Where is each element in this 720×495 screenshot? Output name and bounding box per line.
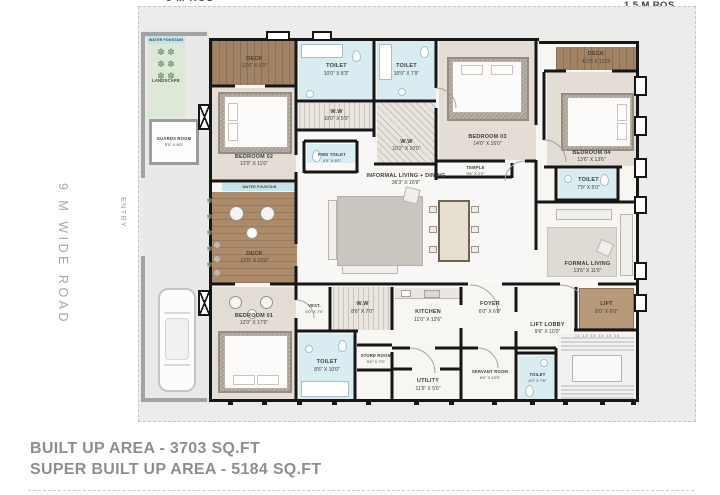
room-name: W.W (330, 109, 342, 116)
car (158, 288, 196, 392)
room-name: UTILITY (417, 378, 439, 385)
room-dims: 5'0" X 7'0" (305, 309, 323, 314)
room-dims: 5'0" X 5'0" (165, 142, 183, 147)
water-fountain-strip: WATER FOUNTAIN (222, 183, 297, 191)
room-name: W.W (356, 301, 368, 308)
wall-stub (530, 399, 535, 405)
window (634, 294, 647, 312)
room-vestibule: VEST.5'0" X 7'0" (299, 287, 330, 330)
room-dims: 13'6" X 11'6" (574, 268, 602, 275)
wall-stub (600, 399, 605, 405)
super-built-up-area-text: SUPER BUILT UP AREA - 5184 SQ.FT (30, 461, 321, 479)
room-name: TOILET (396, 63, 417, 70)
room-lift: LIFT8'0" X 6'0" (579, 288, 634, 329)
car-roof (165, 318, 189, 360)
entry-label: ENTRY (119, 197, 126, 228)
stair-step-numbers: 11 12 13 14 15 16 (559, 334, 636, 338)
floor-plan-canvas: 5 M ROS 1.5 M ROS 9 M WIDE ROAD ENTRY WA… (0, 0, 720, 495)
room-servant: SERVANT ROOM6'0" X 13'3" (464, 351, 516, 399)
room-bedroom-04: BEDROOM 0413'6" X 13'6" (547, 72, 636, 166)
room-name: WATER FOUNTAIN (243, 185, 277, 190)
room-dims: 12'0" X 10'0" (240, 258, 268, 265)
room-formal-living: FORMAL LIVING13'6" X 11'6" (539, 205, 636, 283)
room-name: LIFT (600, 301, 612, 308)
room-name: BEDROOM 03 (468, 134, 506, 141)
compound-wall (141, 398, 207, 402)
dining-chair (429, 246, 437, 253)
room-dims: 7'9" X 5'0" (577, 185, 600, 192)
room-dims: 9'6" X 2'0" (466, 171, 484, 176)
car-windshield (164, 312, 190, 314)
room-store: STORE ROOM5'0" X 7'0" (360, 348, 392, 369)
room-dims: 6'0" X 13'3" (480, 375, 500, 380)
living-rug (337, 196, 423, 266)
room-name: W.W (400, 139, 412, 146)
dining-chair (471, 226, 479, 233)
built-up-area-text: BUILT UP AREA - 3703 SQ.FT (30, 440, 260, 458)
wall-stub (449, 399, 454, 405)
room-ww-bedroom03: W.W10'2" X 10'0" (377, 103, 436, 163)
room-name: INFORMAL LIVING + DINING (347, 173, 465, 180)
room-dims: 8'6" X 10'0" (314, 367, 339, 374)
window (312, 31, 332, 41)
road-label: 9 M WIDE ROAD (56, 183, 70, 325)
unit-top-step (539, 30, 639, 44)
room-guards: GUARDS ROOM5'0" X 5'0" (149, 119, 199, 165)
room-deck-bedroom02: DECK12'0" X 5'0" (212, 41, 297, 85)
room-foyer: FOYER6'0" X 6'0" (464, 287, 516, 330)
room-pwd-toilet: PWD TOILET5'0" X 6'0" (307, 144, 357, 172)
room-name: LIFT LOBBY (530, 322, 564, 329)
sofa (342, 265, 398, 274)
room-dims: 4175 X 1225 (582, 59, 610, 66)
room-name: WATER FOUNTAIN (149, 38, 183, 43)
room-name: TOILET (578, 177, 599, 184)
bottom-divider (28, 490, 694, 491)
stair-landing (572, 355, 622, 382)
room-name: FORMAL LIVING (565, 261, 611, 268)
room-name: LANDSCAPE (152, 78, 180, 84)
wall-stub (492, 399, 497, 405)
room-dims: 11'6" X 5'6" (415, 386, 440, 393)
room-toilet-servant: TOILET4'0" X 7'6" (519, 356, 556, 399)
room-dims: 10'0" X 5'0" (324, 116, 349, 123)
room-dims: 14'0" X 16'0" (473, 141, 501, 148)
room-name: TOILET (326, 63, 347, 70)
room-name: KITCHEN (415, 309, 441, 316)
room-name: BEDROOM 01 (235, 313, 273, 320)
room-bedroom-03: BEDROOM 0314'0" X 16'0" (439, 41, 536, 160)
room-dims: 10'9" X 7'9" (394, 71, 419, 78)
room-deck-bedroom01: DECK12'0" X 10'0" (212, 192, 297, 283)
room-name: BEDROOM 04 (572, 150, 610, 157)
dining-table (438, 200, 470, 262)
column-niche (198, 290, 211, 316)
wall-stub (297, 399, 302, 405)
room-dims: 5'0" X 7'0" (367, 359, 385, 364)
room-dims: 10'0" X 8'3" (324, 71, 349, 78)
room-toilet-bedroom04: TOILET7'9" X 5'0" (559, 169, 618, 200)
room-dims: 12'0" X 17'6" (240, 320, 268, 327)
room-deck-bedroom04: DECK4175 X 1225 (556, 47, 636, 70)
wall-stub (228, 399, 233, 405)
room-ww-bedroom01: W.W8'6" X 7'0" (333, 287, 392, 330)
room-toilet-bedroom03: TOILET10'9" X 7'9" (377, 41, 436, 100)
room-dims: 13'6" X 13'6" (577, 157, 605, 164)
top-setback-label: 5 M ROS (150, 0, 230, 4)
car-rear-window (164, 364, 190, 366)
room-dims: 6'0" X 6'0" (479, 309, 502, 316)
room-name: DECK (246, 56, 262, 63)
room-dims: 8'6" X 7'0" (351, 309, 374, 316)
room-dims: 36'3" X 16'9" (347, 180, 465, 187)
room-toilet-bedroom01: TOILET8'6" X 10'0" (299, 334, 355, 399)
room-name: DECK (246, 251, 262, 258)
room-ww-bedroom02: W.W10'0" X 5'0" (299, 103, 374, 129)
window (266, 31, 290, 41)
room-name: DECK (588, 51, 604, 58)
room-dims: 8'0" X 6'0" (595, 309, 618, 316)
dining-chair (471, 206, 479, 213)
room-dims: 12'0" X 11'0" (240, 161, 268, 168)
landscape-area: LANDSCAPE (147, 44, 185, 118)
room-name: BEDROOM 02 (235, 154, 273, 161)
room-bedroom-01: BEDROOM 0112'0" X 17'6" (212, 287, 296, 399)
room-dims: 12'0" X 5'0" (242, 63, 267, 70)
room-dims: 11'0" X 12'6" (414, 317, 442, 324)
room-dims: 9'6" X 10'0" (535, 329, 560, 336)
wall-stub (262, 399, 267, 405)
room-utility: UTILITY11'6" X 5'6" (395, 372, 461, 399)
sofa (328, 200, 337, 260)
dining-chair (429, 206, 437, 213)
informal-living-label: INFORMAL LIVING + DINING36'3" X 16'9" (347, 173, 465, 187)
wall-stub (563, 399, 568, 405)
wall-stub (366, 399, 371, 405)
room-kitchen: KITCHEN11'0" X 12'6" (395, 287, 461, 346)
room-dims: 4'0" X 7'6" (528, 378, 546, 383)
dining-chair (471, 246, 479, 253)
column-niche (198, 104, 211, 130)
dining-chair (429, 226, 437, 233)
wall-stub (631, 399, 636, 405)
wall-stub (414, 399, 419, 405)
compound-wall (141, 32, 145, 178)
compound-wall (141, 256, 145, 402)
room-bedroom-02: BEDROOM 0212'0" X 11'0" (212, 88, 296, 180)
room-name: TOILET (317, 359, 338, 366)
wall-stub (332, 399, 337, 405)
room-dims: 5'0" X 6'0" (323, 158, 341, 163)
room-name: FOYER (480, 301, 500, 308)
water-fountain-top: WATER FOUNTAIN (147, 36, 185, 44)
room-toilet-bedroom02: TOILET10'0" X 8'3" (299, 41, 374, 100)
room-dims: 10'2" X 10'0" (392, 146, 420, 153)
